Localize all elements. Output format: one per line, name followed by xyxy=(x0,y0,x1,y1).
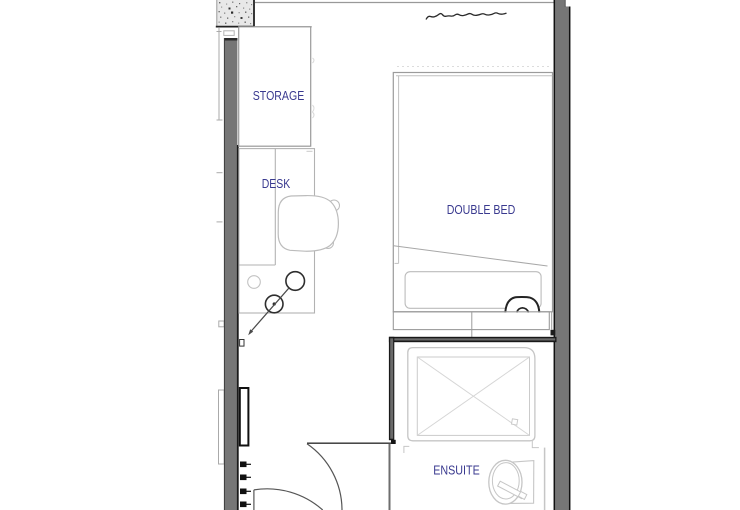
svg-text:ENSUITE: ENSUITE xyxy=(433,463,480,478)
svg-text:DOUBLE BED: DOUBLE BED xyxy=(447,202,516,217)
svg-text:DESK: DESK xyxy=(262,176,291,191)
svg-text:STORAGE: STORAGE xyxy=(253,88,305,103)
